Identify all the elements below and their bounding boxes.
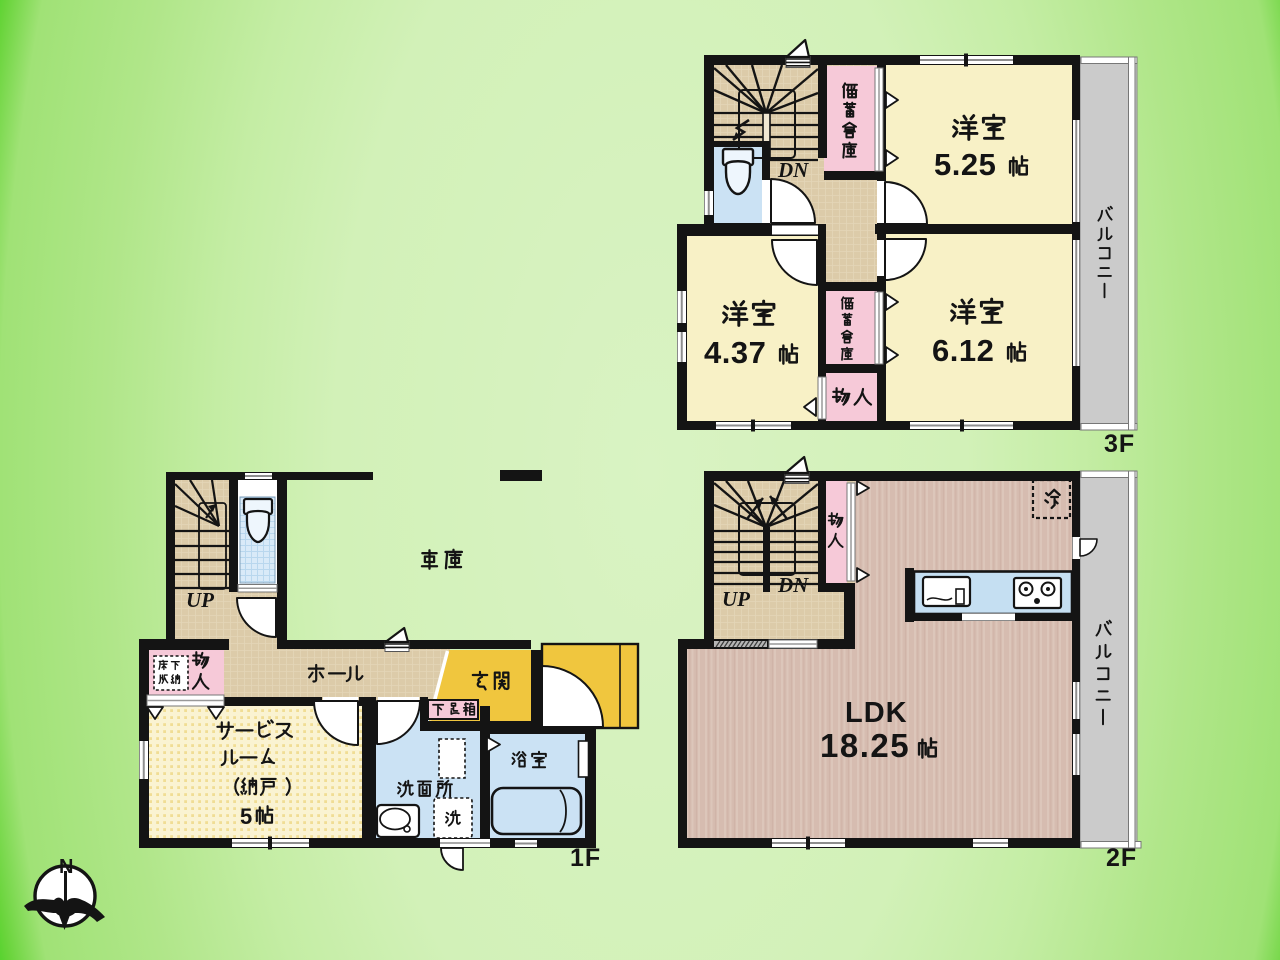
svg-text:DN: DN [777,573,809,597]
svg-text:5: 5 [240,804,252,829]
svg-text:18.25: 18.25 [820,727,910,764]
svg-text:DN: DN [777,158,809,182]
svg-text:1F: 1F [570,844,601,872]
svg-text:5.25: 5.25 [934,147,996,182]
svg-text:6.12: 6.12 [932,333,994,368]
svg-text:4.37: 4.37 [704,335,766,370]
svg-text:3F: 3F [1104,430,1135,458]
svg-text:LDK: LDK [845,697,908,729]
svg-text:2F: 2F [1106,844,1137,872]
svg-text:UP: UP [186,588,214,612]
svg-text:UP: UP [722,587,750,611]
